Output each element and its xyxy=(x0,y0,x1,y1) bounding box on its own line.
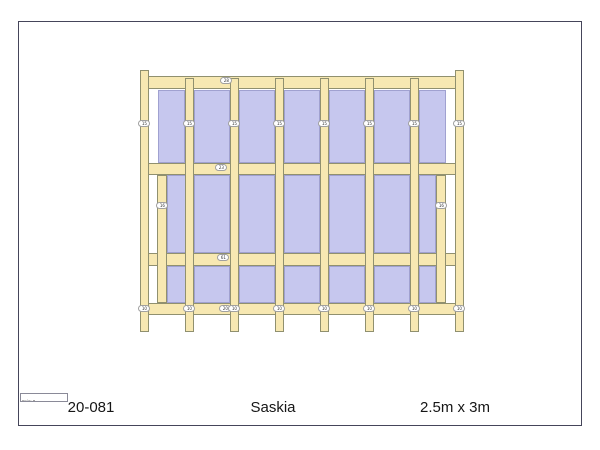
part-number-text: 61 xyxy=(220,256,225,260)
drawing-page: 2823612015151515151515151616101010101010… xyxy=(0,0,600,450)
part-number-text: 16 xyxy=(438,204,443,208)
part-number-badge: 15 xyxy=(273,120,285,127)
wall-panel xyxy=(239,175,275,253)
part-number-badge: 23 xyxy=(215,164,227,171)
part-number-badge: 10 xyxy=(363,305,375,312)
wall-panel xyxy=(158,90,185,163)
wall-panel xyxy=(194,90,230,163)
wall-panel xyxy=(239,90,275,163)
part-number-badge: 10 xyxy=(408,305,420,312)
part-number-text: 15 xyxy=(186,122,191,126)
part-number-text: 10 xyxy=(321,307,326,311)
stud xyxy=(230,78,239,332)
stud xyxy=(365,78,374,332)
corner-post-left xyxy=(140,70,149,332)
part-number-badge: 16 xyxy=(156,202,168,209)
wall-panel xyxy=(419,90,446,163)
wall-panel xyxy=(194,175,230,253)
wall-panel xyxy=(284,90,320,163)
part-number-text: 28 xyxy=(223,79,228,83)
part-number-badge: 15 xyxy=(228,120,240,127)
wall-panel xyxy=(194,266,230,303)
wall-panel xyxy=(374,90,410,163)
wall-panel xyxy=(329,175,365,253)
part-number-badge: 10 xyxy=(183,305,195,312)
part-number-badge: 15 xyxy=(408,120,420,127)
part-number-text: 10 xyxy=(276,307,281,311)
part-number-badge: 16 xyxy=(435,202,447,209)
right-jamb-stud xyxy=(436,175,446,303)
stud xyxy=(410,78,419,332)
part-number-badge: 15 xyxy=(183,120,195,127)
part-number-text: 10 xyxy=(411,307,416,311)
part-number-text: 10 xyxy=(186,307,191,311)
wall-panel xyxy=(329,90,365,163)
part-number-badge: 15 xyxy=(453,120,465,127)
part-number-text: 15 xyxy=(141,122,146,126)
dimensions-text: 2.5m x 3m xyxy=(420,399,490,416)
wall-panel xyxy=(329,266,365,303)
wall-panel xyxy=(419,175,436,253)
part-number-badge: 10 xyxy=(273,305,285,312)
part-number-text: 23 xyxy=(218,166,223,170)
wall-panel xyxy=(419,266,436,303)
wall-panel xyxy=(374,175,410,253)
part-number-badge: 15 xyxy=(318,120,330,127)
part-number-badge: 10 xyxy=(138,305,150,312)
wall-panel xyxy=(374,266,410,303)
part-number-text: 15 xyxy=(321,122,326,126)
part-number-badge: 28 xyxy=(220,77,232,84)
wall-panel xyxy=(284,175,320,253)
part-number-text: 15 xyxy=(411,122,416,126)
stud xyxy=(275,78,284,332)
wall-panel xyxy=(239,266,275,303)
part-number-badge: 10 xyxy=(453,305,465,312)
part-number-text: 10 xyxy=(456,307,461,311)
part-number-text: 15 xyxy=(366,122,371,126)
order-number: 20-081 xyxy=(68,399,115,416)
stud xyxy=(320,78,329,332)
part-number-text: 15 xyxy=(276,122,281,126)
part-number-badge: 10 xyxy=(228,305,240,312)
part-number-badge: 10 xyxy=(318,305,330,312)
left-jamb-stud xyxy=(157,175,167,303)
wall-label-box: Sein: 2 xyxy=(20,393,68,402)
part-number-badge: 15 xyxy=(138,120,150,127)
model-name: Saskia xyxy=(250,399,295,416)
stud xyxy=(185,78,194,332)
part-number-badge: 61 xyxy=(217,254,229,261)
part-number-text: 10 xyxy=(366,307,371,311)
part-number-text: 10 xyxy=(141,307,146,311)
part-number-text: 15 xyxy=(231,122,236,126)
part-number-text: 10 xyxy=(231,307,236,311)
wall-label-text: Sein: 2 xyxy=(22,400,35,402)
wall-panel xyxy=(284,266,320,303)
part-number-text: 16 xyxy=(159,204,164,208)
corner-post-right xyxy=(455,70,464,332)
part-number-text: 20 xyxy=(222,307,227,311)
part-number-text: 15 xyxy=(456,122,461,126)
part-number-badge: 15 xyxy=(363,120,375,127)
